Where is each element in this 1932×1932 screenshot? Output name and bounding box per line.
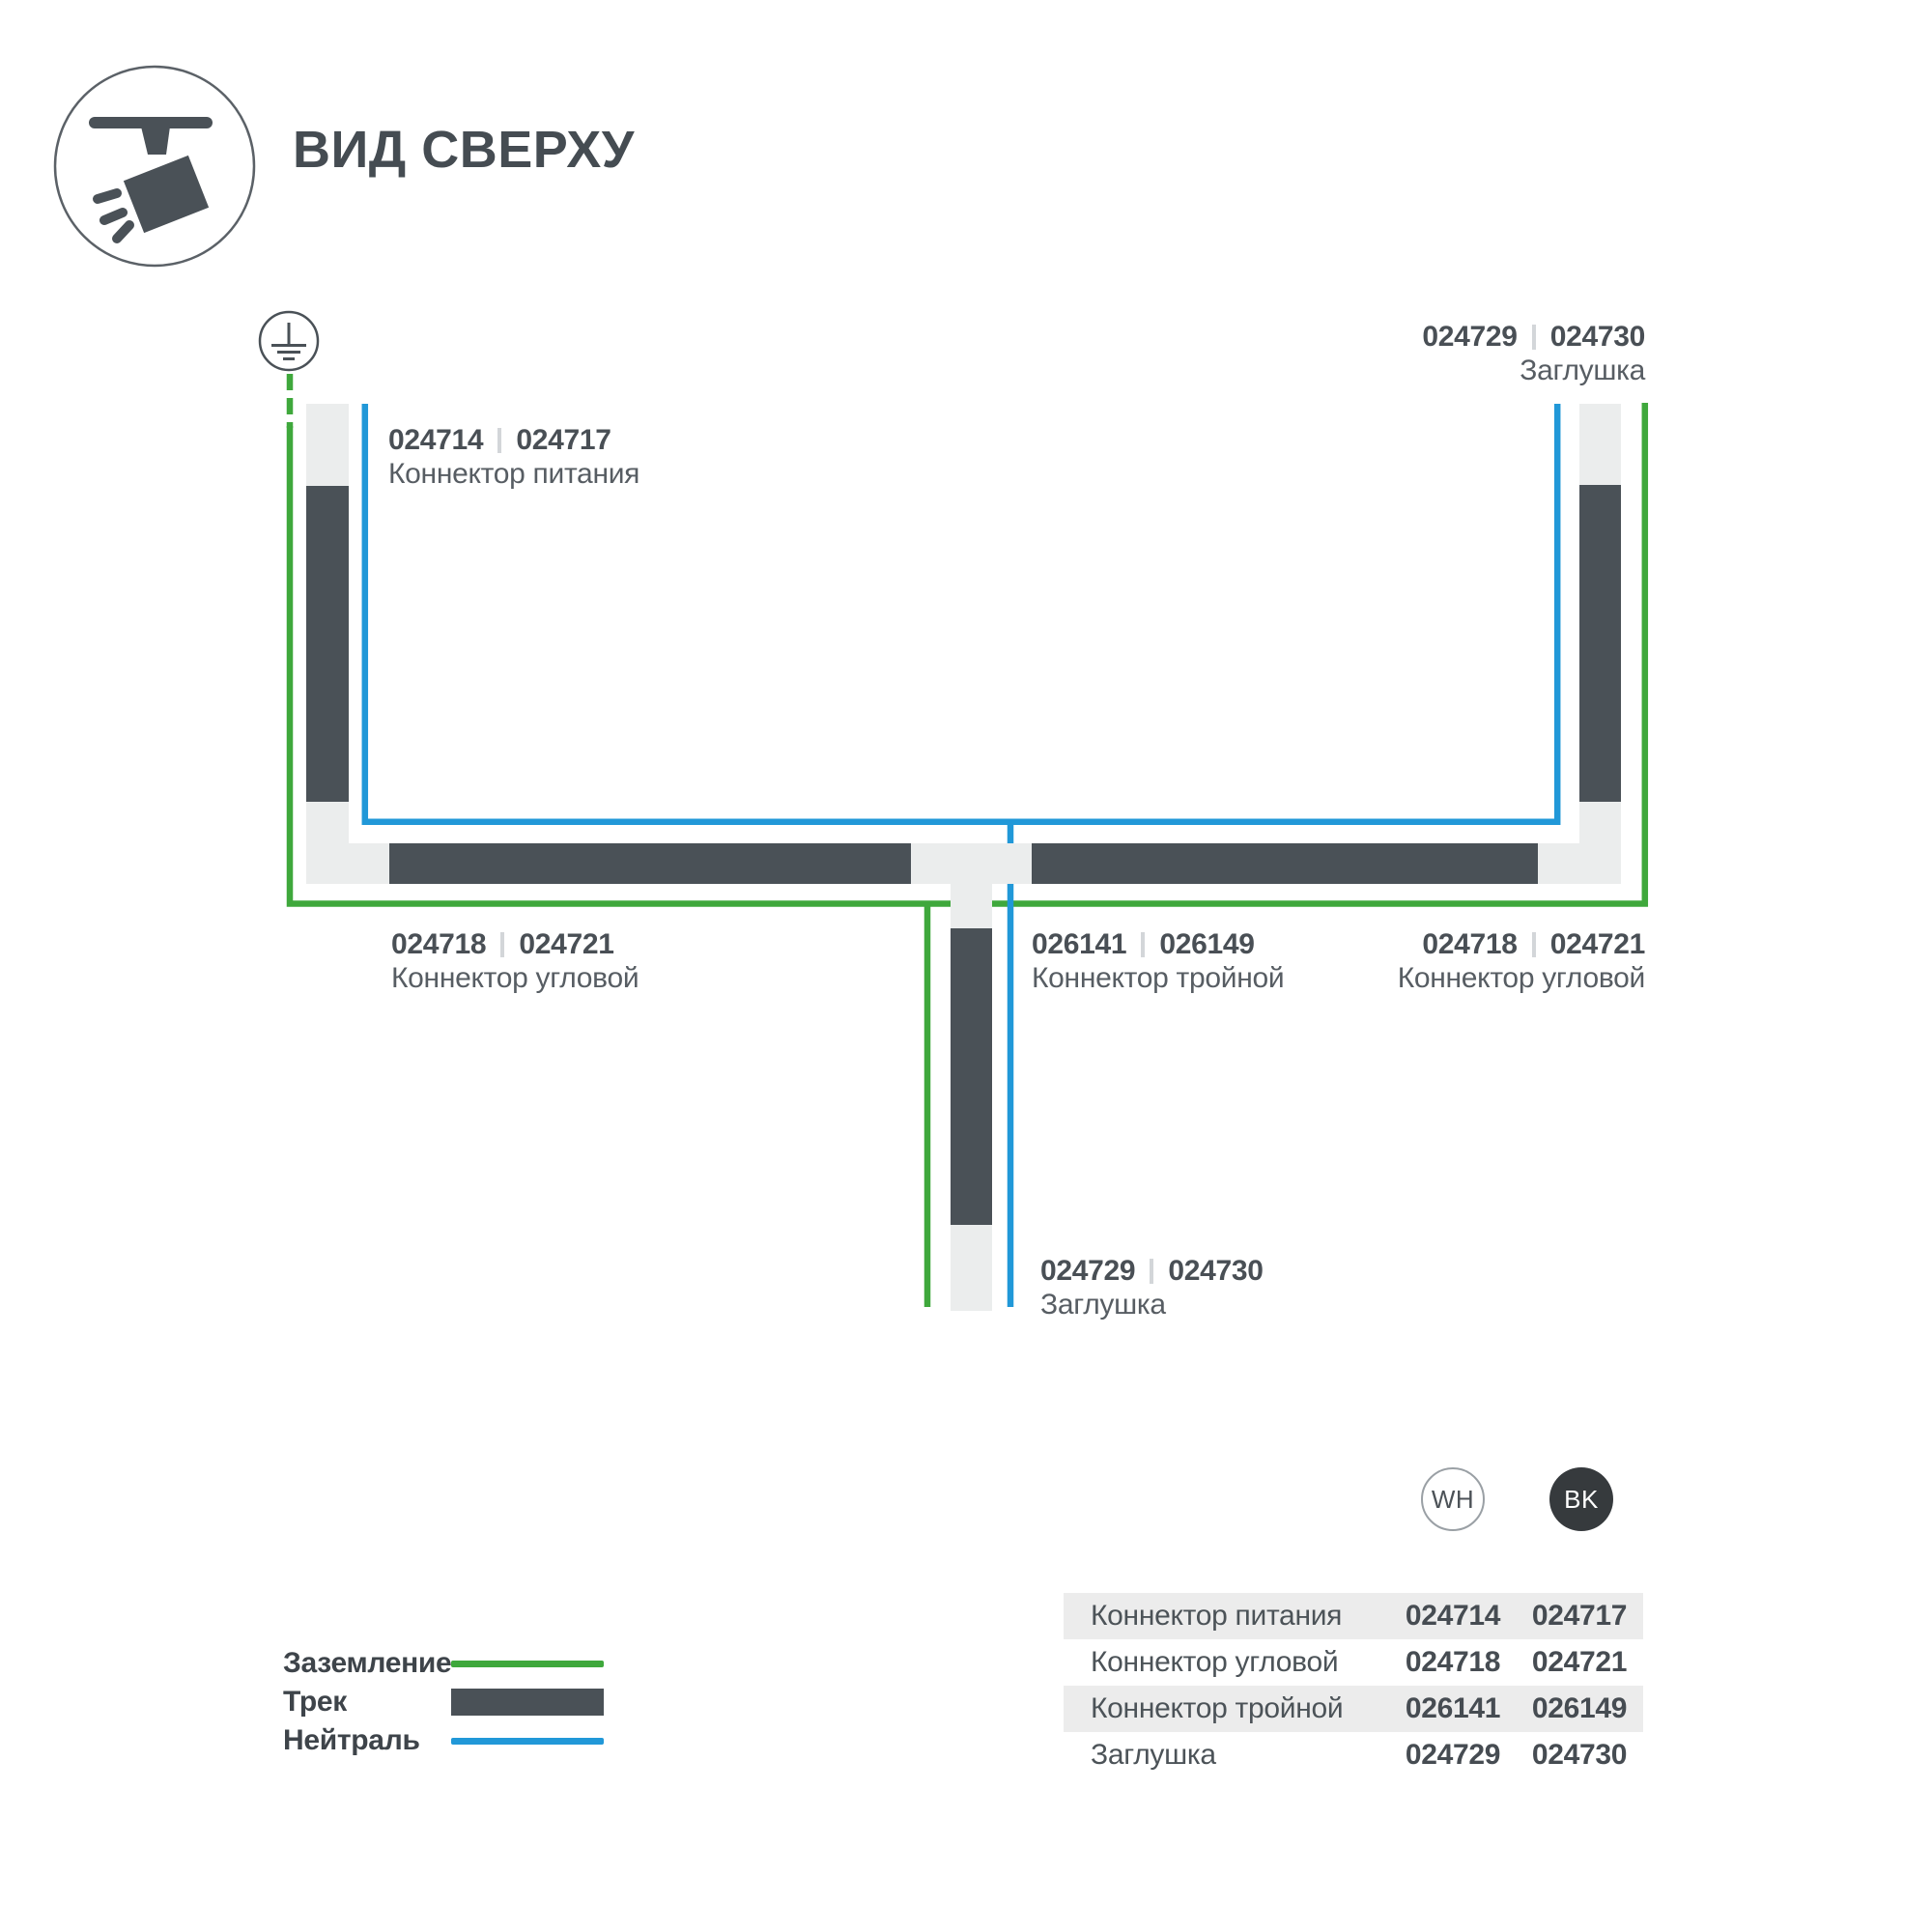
triple-connector-leg	[951, 884, 992, 928]
label-corner-connector-left: 024718024721 Коннектор угловой	[391, 927, 639, 995]
track-middle-vertical	[951, 928, 992, 1225]
track-left-vertical	[306, 486, 349, 802]
label-name: Заглушка	[1040, 1288, 1264, 1321]
end-cap-bottom-piece	[951, 1225, 992, 1311]
label-power-connector: 024714024717 Коннектор питания	[388, 423, 639, 491]
colorway-white-badge: WH	[1421, 1467, 1485, 1531]
corner-connector-left-vert	[306, 802, 349, 884]
part-code-wh: 024718	[1390, 1646, 1516, 1679]
part-code-wh: 024714	[1390, 1600, 1516, 1633]
legend-track-bar-swatch	[451, 1689, 604, 1716]
code-separator	[1141, 932, 1145, 957]
end-cap-top-piece	[1579, 404, 1621, 485]
table-row: Коннектор тройной 026141 026149	[1064, 1686, 1643, 1732]
label-codes: 026141026149	[1032, 927, 1284, 961]
part-code-bk: 024717	[1516, 1600, 1643, 1633]
label-codes: 024718024721	[1398, 927, 1645, 961]
label-name: Заглушка	[1422, 354, 1645, 387]
label-triple-connector: 026141026149 Коннектор тройной	[1032, 927, 1284, 995]
label-end-cap-bottom: 024729024730 Заглушка	[1040, 1254, 1264, 1321]
legend-item-ground: Заземление	[283, 1644, 604, 1683]
colorway-black-badge: BK	[1549, 1467, 1613, 1531]
track-bottom-left	[389, 843, 911, 884]
label-name: Коннектор питания	[388, 457, 639, 491]
corner-connector-right-horiz	[1538, 843, 1580, 884]
part-codes-table: Коннектор питания 024714 024717 Коннекто…	[1064, 1593, 1643, 1778]
part-name: Коннектор тройной	[1064, 1692, 1390, 1725]
label-name: Коннектор угловой	[391, 961, 639, 995]
legend-item-neutral: Нейтраль	[283, 1721, 604, 1760]
legend: Заземление Трек Нейтраль	[283, 1644, 604, 1760]
part-name: Заглушка	[1064, 1739, 1390, 1772]
part-code-wh: 026141	[1390, 1692, 1516, 1725]
part-code-wh: 024729	[1390, 1739, 1516, 1772]
table-row: Коннектор питания 024714 024717	[1064, 1593, 1643, 1639]
table-row: Коннектор угловой 024718 024721	[1064, 1639, 1643, 1686]
legend-label: Заземление	[283, 1647, 451, 1680]
label-corner-connector-right: 024718024721 Коннектор угловой	[1398, 927, 1645, 995]
table-row: Заглушка 024729 024730	[1064, 1732, 1643, 1778]
legend-ground-line-swatch	[451, 1661, 604, 1667]
track-right-vertical	[1579, 485, 1621, 802]
power-connector-piece	[306, 404, 349, 486]
code-separator	[1150, 1259, 1153, 1284]
legend-item-track: Трек	[283, 1683, 604, 1721]
label-codes: 024718024721	[391, 927, 639, 961]
legend-label: Трек	[283, 1686, 451, 1719]
triple-connector-bar	[911, 843, 1032, 884]
legend-label: Нейтраль	[283, 1724, 451, 1757]
part-code-bk: 024721	[1516, 1646, 1643, 1679]
part-code-bk: 026149	[1516, 1692, 1643, 1725]
corner-connector-left-horiz	[348, 843, 389, 884]
code-separator	[1532, 325, 1536, 350]
corner-connector-right-vert	[1579, 802, 1621, 884]
legend-neutral-line-swatch	[451, 1738, 604, 1745]
earth-ground-symbol	[260, 312, 318, 370]
label-name: Коннектор тройной	[1032, 961, 1284, 995]
label-end-cap-top: 024729024730 Заглушка	[1422, 320, 1645, 387]
code-separator	[497, 428, 501, 453]
track-bottom-right	[1032, 843, 1538, 884]
label-codes: 024729024730	[1040, 1254, 1264, 1288]
label-codes: 024729024730	[1422, 320, 1645, 354]
label-name: Коннектор угловой	[1398, 961, 1645, 995]
part-code-bk: 024730	[1516, 1739, 1643, 1772]
code-separator	[1532, 932, 1536, 957]
label-codes: 024714024717	[388, 423, 639, 457]
part-name: Коннектор питания	[1064, 1600, 1390, 1633]
code-separator	[500, 932, 504, 957]
part-name: Коннектор угловой	[1064, 1646, 1390, 1679]
